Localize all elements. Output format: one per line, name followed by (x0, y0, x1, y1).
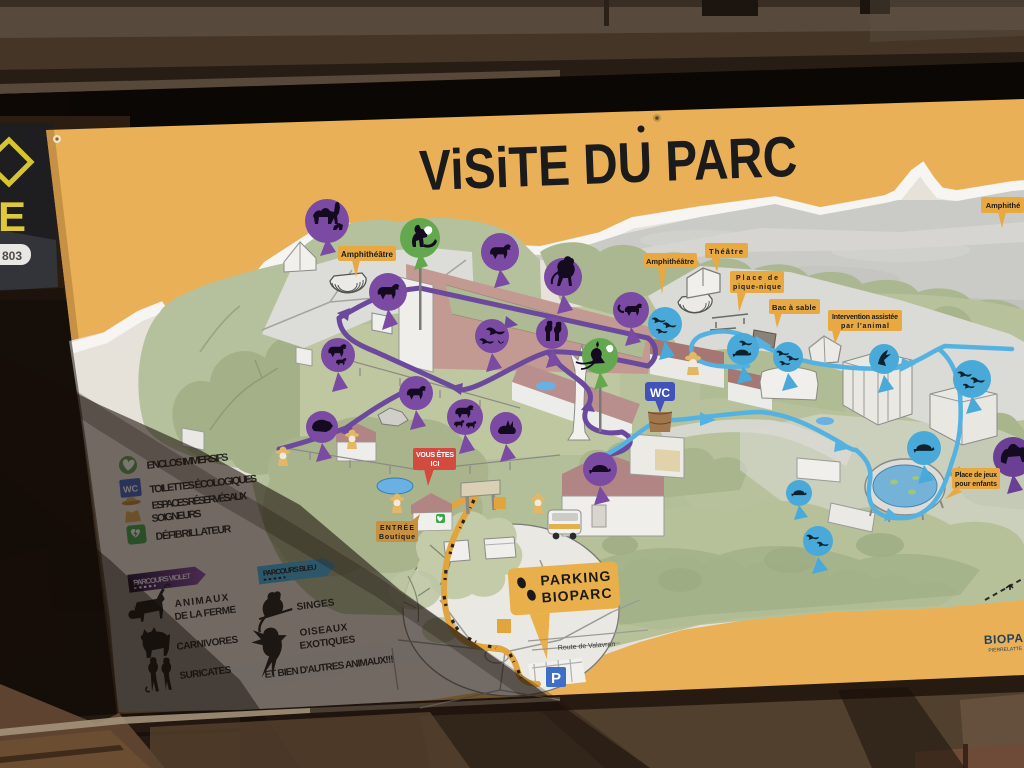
svg-text:P: P (551, 670, 561, 687)
svg-text:Amphithéâtre: Amphithéâtre (646, 257, 694, 266)
svg-text:par l'animal: par l'animal (841, 323, 889, 330)
svg-text:pour enfants: pour enfants (955, 481, 997, 488)
svg-text:Bac à sable: Bac à sable (772, 303, 816, 312)
svg-text:E: E (0, 193, 26, 240)
svg-text:Place de jeux: Place de jeux (955, 472, 997, 479)
svg-text:ENTRÉE: ENTRÉE (380, 523, 414, 532)
svg-text:Intervention assistée: Intervention assistée (832, 314, 898, 321)
svg-text:Amphithéâtre: Amphithéâtre (341, 250, 394, 259)
svg-text:ICI: ICI (431, 461, 440, 468)
svg-text:Boutique: Boutique (379, 534, 415, 541)
svg-text:BIOPARC: BIOPARC (984, 630, 1024, 647)
svg-text:pique-nique: pique-nique (733, 284, 781, 291)
svg-text:WC: WC (650, 386, 670, 400)
svg-text:Amphithé: Amphithé (986, 201, 1021, 210)
svg-text:Théâtre: Théâtre (709, 247, 743, 256)
svg-text:VOUS ÊTES: VOUS ÊTES (416, 450, 454, 459)
svg-text:3 803: 3 803 (0, 249, 22, 263)
